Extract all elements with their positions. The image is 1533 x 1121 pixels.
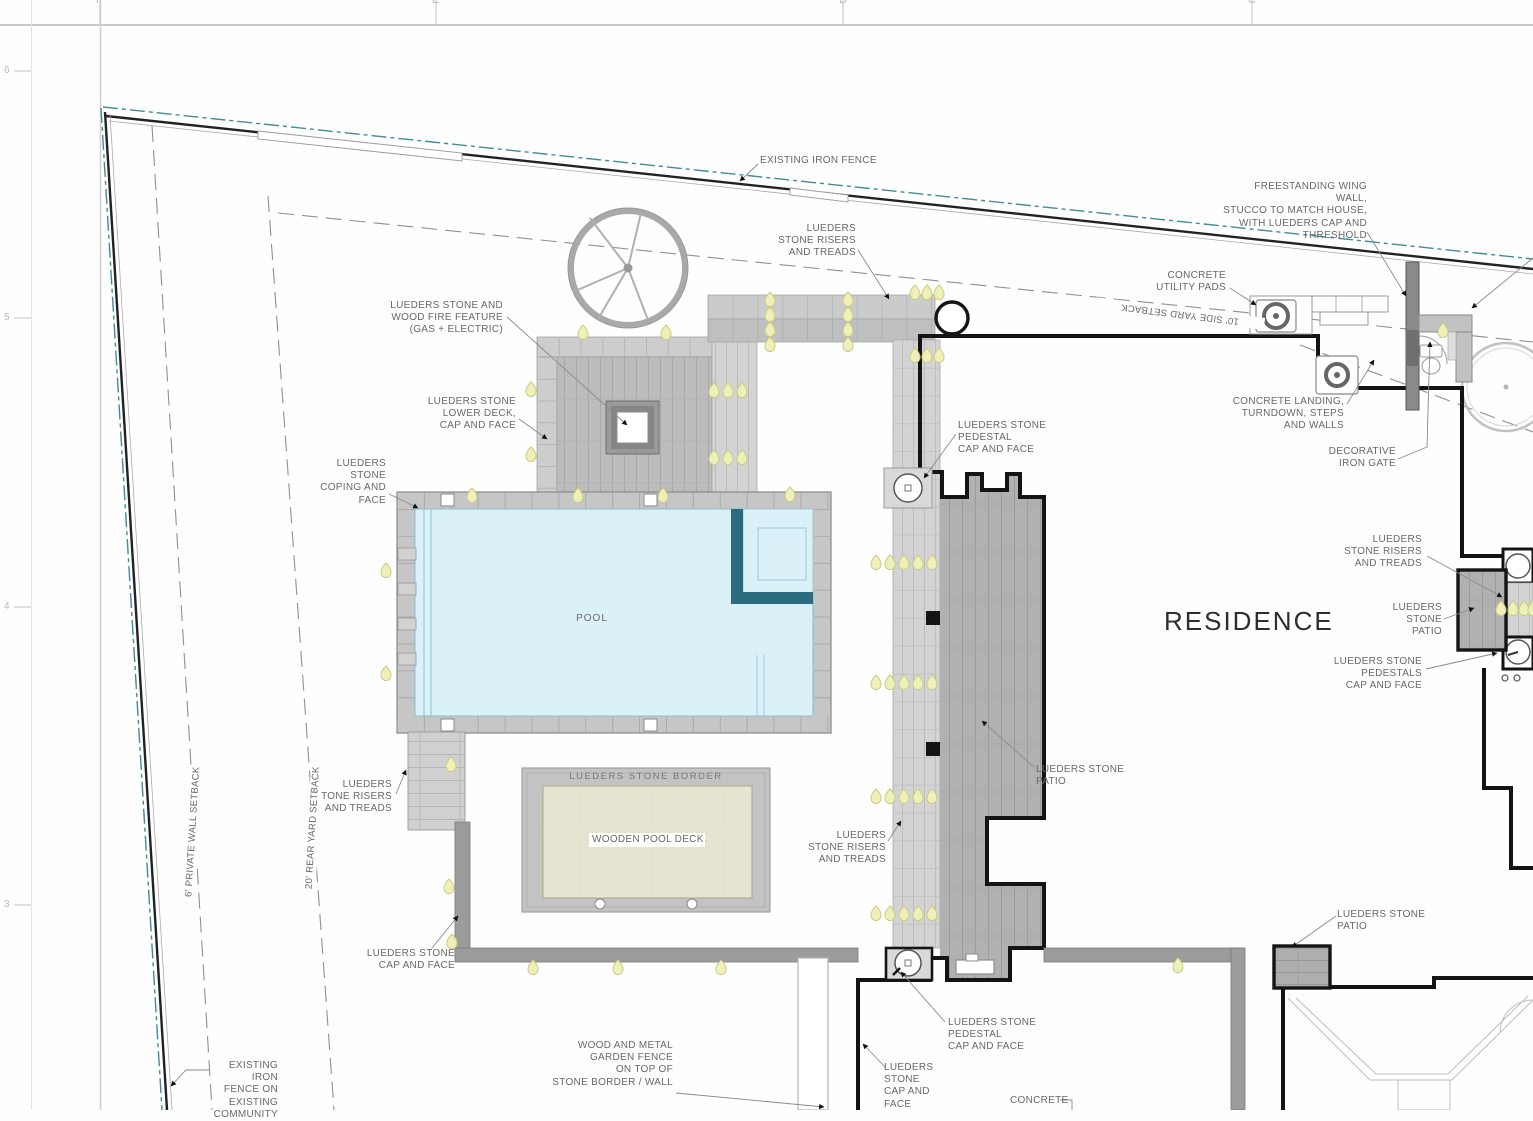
grid-column-e: E: [432, 0, 439, 6]
label-risers-treads-top: LUEDERS STONE RISERS AND TREADS: [776, 223, 856, 260]
label-garden-fence: WOOD AND METAL GARDEN FENCE ON TOP OF ST…: [545, 1040, 673, 1089]
label-stone-patio-right: LUEDERS STONE PATIO: [1392, 602, 1442, 639]
label-fire-feature: LUEDERS STONE AND WOOD FIRE FEATURE (GAS…: [383, 300, 503, 337]
label-cap-face-bottom: LUEDERS STONE CAP AND FACE: [884, 1062, 934, 1111]
ac-unit-lower: [1316, 356, 1358, 394]
label-pedestals: LUEDERS STONE PEDESTALS CAP AND FACE: [1332, 656, 1422, 693]
label-lower-deck: LUEDERS STONE LOWER DECK, CAP AND FACE: [391, 396, 516, 433]
label-concrete-landing: CONCRETE LANDING, TURNDOWN, STEPS AND WA…: [1222, 396, 1344, 433]
label-stone-border: LUEDERS STONE BORDER: [560, 771, 732, 783]
grid-column-f: F: [96, 0, 103, 6]
site-plan-page: { "drawing": { "grid": { "columns": ["F"…: [0, 0, 1533, 1110]
pedestal-top: [884, 468, 932, 508]
pedestal-bottom: [886, 948, 932, 980]
concrete-utility-pads: [1250, 296, 1388, 334]
freestanding-wing-wall: [1406, 262, 1419, 410]
grid-row-3: 3: [4, 899, 10, 910]
grid-column-c: C: [1248, 0, 1256, 6]
tree-canopy-right: [1462, 343, 1533, 431]
toilet-fixture: [1420, 345, 1442, 374]
label-risers-treads-left: LUEDERS STONE RISERS AND TREADS: [314, 779, 392, 816]
label-existing-fence-community: EXISTING IRON FENCE ON EXISTING COMMUNIT…: [203, 1060, 278, 1121]
pool-complex: [397, 492, 831, 733]
column-circle: [936, 302, 968, 334]
lueders-stone-patio-main: [926, 473, 1044, 979]
label-pedestal-bottom: LUEDERS STONE PEDESTAL CAP AND FACE: [948, 1017, 1058, 1054]
walkway-risers-treads: [708, 295, 935, 342]
pool-water: [415, 509, 813, 716]
label-residence: RESIDENCE: [1164, 606, 1334, 638]
label-utility-pads: CONCRETE UTILITY PADS: [1128, 270, 1226, 294]
label-concrete: CONCRETE: [1010, 1095, 1080, 1107]
garden-fence-gate: [798, 958, 828, 1110]
steps-strip: [893, 340, 940, 948]
left-stone-steps: [408, 732, 465, 830]
label-iron-gate: DECORATIVE IRON GATE: [1316, 446, 1396, 470]
bottom-right-patio: [1274, 946, 1330, 988]
residence-interior-lines: [1288, 996, 1533, 1110]
grid-row-6: 6: [4, 65, 10, 76]
grid-column-d: D: [839, 0, 847, 6]
label-wooden-pool-deck: WOODEN POOL DECK: [589, 833, 705, 847]
label-risers-treads-mid: LUEDERS STONE RISERS AND TREADS: [790, 830, 886, 867]
label-pedestal-top: LUEDERS STONE PEDESTAL CAP AND FACE: [958, 420, 1068, 457]
label-stone-patio-bottom: LUEDERS STONE PATIO: [1337, 909, 1452, 933]
grid-row-4: 4: [4, 601, 10, 612]
label-risers-treads-right: LUEDERS STONE RISERS AND TREADS: [1340, 534, 1422, 571]
grid-row-5: 5: [4, 312, 10, 323]
label-stone-patio-mid: LUEDERS STONE PATIO: [1036, 764, 1156, 788]
tree-canopy-large: [568, 208, 688, 328]
label-pool: POOL: [570, 613, 614, 625]
label-coping: LUEDERS STONE COPING AND FACE: [306, 458, 386, 507]
lueders-lower-deck: [537, 337, 757, 492]
fire-feature: [606, 401, 659, 454]
label-wing-wall: FREESTANDING WING WALL, STUCCO TO MATCH …: [1222, 181, 1367, 242]
label-existing-iron-fence: EXISTING IRON FENCE: [760, 155, 880, 167]
label-cap-face-left: LUEDERS STONE CAP AND FACE: [330, 948, 455, 972]
